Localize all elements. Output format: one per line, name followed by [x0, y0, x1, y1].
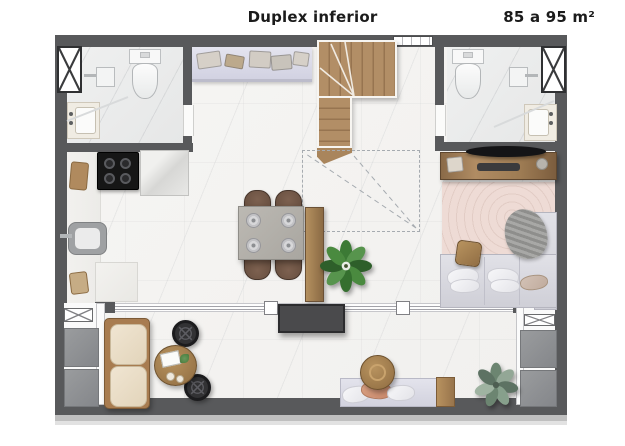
shaft-window-left	[57, 46, 82, 93]
serving-board	[69, 271, 90, 295]
wall-bath-right-side	[435, 47, 444, 105]
door-opening-bath-right	[435, 105, 446, 136]
bench-side-table	[360, 355, 395, 390]
ac-unit-left-2	[64, 369, 99, 407]
faucet-dot	[69, 121, 73, 125]
lounge-pouf-chair	[172, 320, 199, 347]
balcony-edge-shadow	[55, 421, 567, 425]
table-plant	[180, 354, 189, 363]
plate	[281, 238, 296, 253]
plate	[246, 213, 261, 228]
picture-frame	[446, 156, 463, 173]
bench-wood-end	[436, 377, 455, 407]
counter-appliance	[270, 54, 292, 71]
ac-unit-right-2	[520, 370, 557, 407]
counter-appliance	[292, 51, 310, 67]
sofa-cushion	[110, 324, 147, 365]
bedside-table	[454, 239, 482, 267]
sofa-cushion	[110, 366, 147, 407]
burner	[104, 173, 115, 184]
cooktop	[97, 152, 139, 190]
wall-bath-left-side	[183, 47, 192, 105]
door-jamb	[396, 301, 410, 315]
bed-pillow	[490, 279, 520, 294]
sofa	[104, 318, 150, 409]
plate	[246, 238, 261, 253]
wall-bath-left-stub	[183, 136, 192, 145]
fridge-counter-block	[140, 150, 189, 196]
faucet-dot	[69, 112, 73, 116]
wall-top	[55, 35, 567, 47]
stairs-upper-flight	[317, 40, 397, 98]
soundbar	[477, 163, 520, 171]
shaft-window-right	[541, 46, 566, 93]
cup	[166, 372, 175, 381]
kitchen-sink	[68, 222, 107, 255]
balcony-tv-panel	[278, 304, 345, 333]
plant-dining	[320, 240, 372, 292]
sink-faucet	[60, 234, 72, 238]
speaker-knob	[536, 158, 548, 170]
shower-head-right	[509, 67, 528, 87]
counter-appliance	[249, 50, 272, 68]
cup	[176, 375, 184, 383]
page-title: Duplex inferior	[248, 8, 378, 26]
ac-unit-right-1	[520, 330, 557, 368]
utility-right-xbox	[524, 314, 555, 326]
plant-balcony	[471, 361, 521, 409]
toilet-left-button	[140, 52, 150, 58]
washbasin-left	[75, 107, 96, 134]
plate	[281, 213, 296, 228]
sink-basin	[75, 228, 100, 249]
shower-head-left	[96, 67, 115, 87]
wall-tv	[466, 146, 546, 157]
stairs-lower-flight	[317, 98, 352, 148]
toilet-right-bowl	[455, 63, 481, 99]
cushion-seam	[484, 257, 485, 305]
faucet-dot	[549, 112, 553, 116]
area-range-label: 85 a 95 m²	[503, 8, 595, 26]
door-jamb	[264, 301, 278, 315]
toilet-left-bowl	[132, 63, 158, 99]
burner	[104, 158, 115, 169]
faucet-dot	[549, 121, 553, 125]
ac-unit-left-1	[64, 328, 99, 367]
burner	[120, 158, 131, 169]
counter-appliance	[196, 50, 222, 69]
shower-arm-right	[525, 74, 538, 77]
toilet-right-button	[463, 52, 473, 58]
floorplan-page: Duplex inferior 85 a 95 m²	[0, 0, 625, 446]
cutting-board	[69, 161, 89, 190]
kitchen-counter-return	[95, 262, 138, 302]
burner	[120, 173, 131, 184]
utility-left-xbox	[64, 308, 93, 322]
table-ring	[369, 364, 386, 381]
door-opening-bath-left	[183, 105, 194, 136]
hall-window	[393, 36, 433, 46]
washbasin-right	[528, 109, 549, 136]
